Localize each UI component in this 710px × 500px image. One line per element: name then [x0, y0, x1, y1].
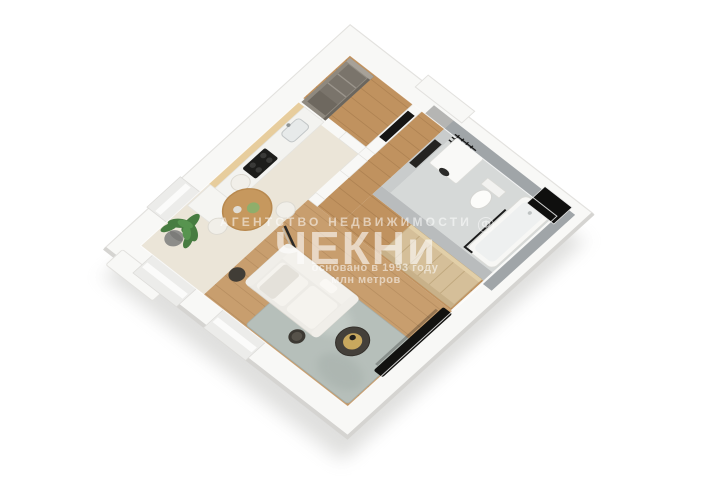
floor-plan-svg	[0, 0, 710, 500]
floor-plan-render: АГЕНТСТВО НЕДВИЖИМОСТИФ ЧЕКНи основано в…	[0, 0, 710, 500]
